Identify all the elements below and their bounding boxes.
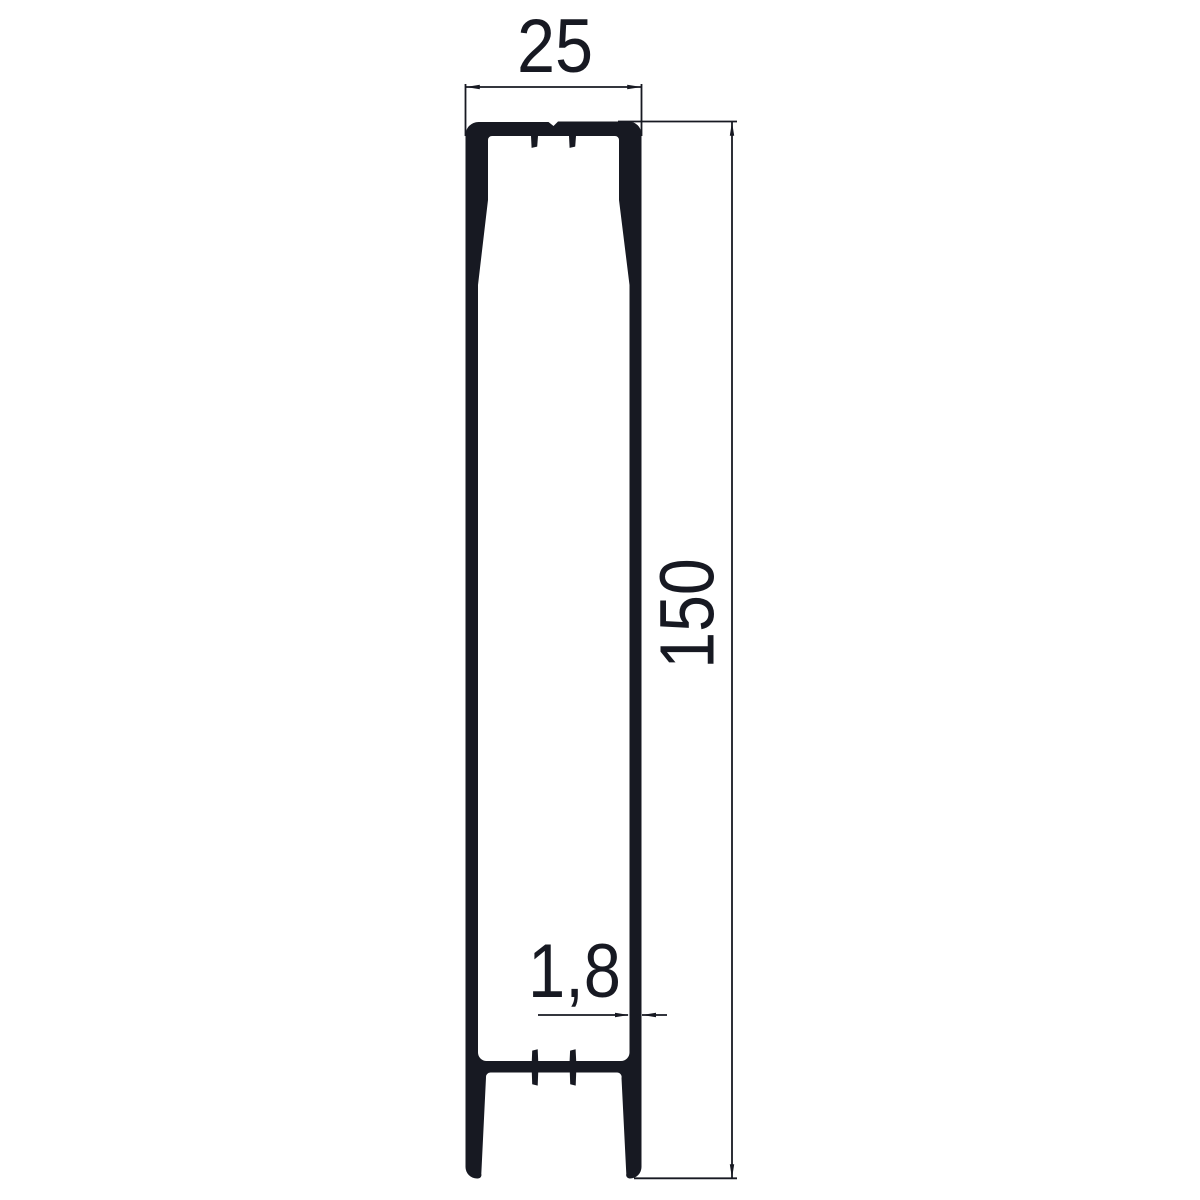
svg-text:150: 150 — [645, 558, 731, 668]
svg-text:25: 25 — [517, 5, 593, 89]
svg-text:1,8: 1,8 — [528, 929, 621, 1014]
